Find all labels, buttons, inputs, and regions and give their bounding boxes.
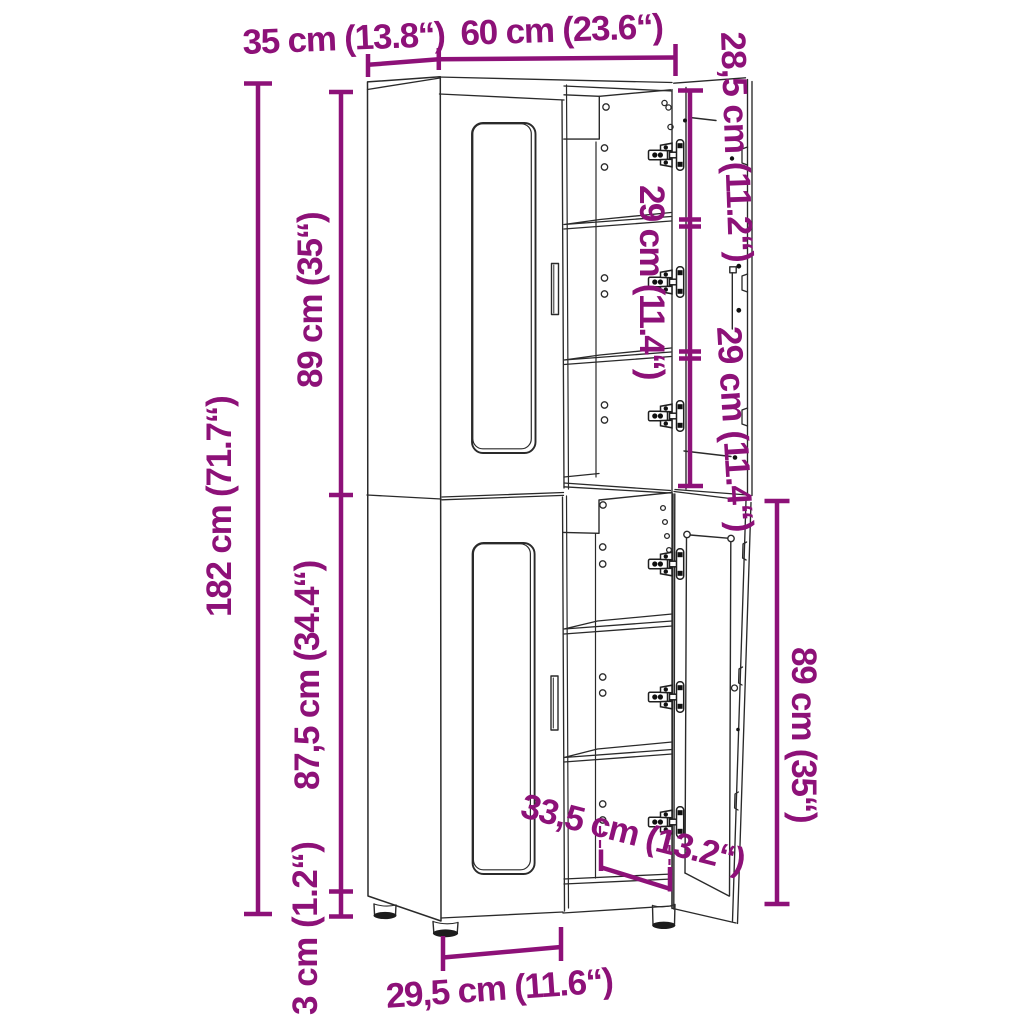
svg-text:60 cm (23.6“): 60 cm (23.6“) (460, 7, 664, 53)
svg-text:35 cm (13.8“): 35 cm (13.8“) (242, 15, 446, 62)
svg-text:29 cm (11.4“): 29 cm (11.4“) (632, 185, 671, 379)
svg-text:89 cm (35“): 89 cm (35“) (291, 212, 330, 388)
svg-text:87,5 cm (34.4“): 87,5 cm (34.4“) (288, 561, 327, 790)
svg-text:89 cm (35“): 89 cm (35“) (784, 647, 823, 823)
svg-text:28,5 cm (11.2“): 28,5 cm (11.2“) (713, 31, 760, 262)
svg-text:182 cm (71.7“): 182 cm (71.7“) (200, 396, 239, 617)
svg-text:3 cm (1.2“): 3 cm (1.2“) (286, 842, 325, 1015)
